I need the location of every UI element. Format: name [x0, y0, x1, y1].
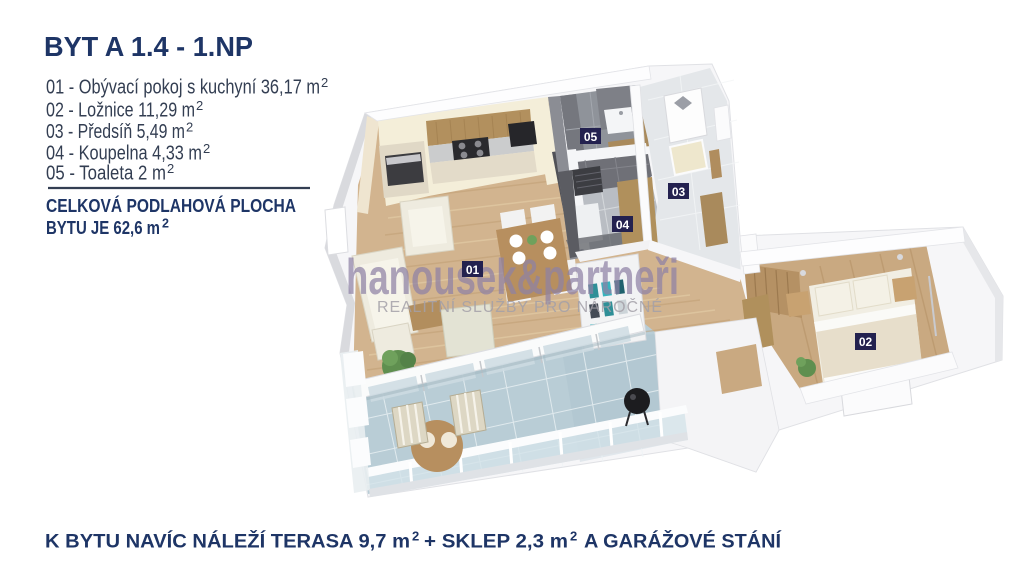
svg-text:2: 2 — [203, 141, 210, 156]
svg-text:2: 2 — [196, 98, 203, 113]
svg-text:A GARÁŽOVÉ STÁNÍ: A GARÁŽOVÉ STÁNÍ — [584, 531, 782, 553]
svg-text:BYT A 1.4 - 1.NP: BYT A 1.4 - 1.NP — [44, 31, 253, 62]
svg-text:01 - Obývací pokoj s kuchyní 3: 01 - Obývací pokoj s kuchyní 36,17 m — [46, 77, 320, 99]
svg-text:CELKOVÁ PODLAHOVÁ PLOCHA: CELKOVÁ PODLAHOVÁ PLOCHA — [46, 195, 296, 216]
svg-text:01: 01 — [466, 263, 480, 277]
svg-text:2: 2 — [570, 529, 577, 544]
svg-text:BYTU JE 62,6 m: BYTU JE 62,6 m — [46, 217, 160, 238]
svg-text:05: 05 — [584, 130, 598, 144]
svg-text:2: 2 — [167, 161, 174, 176]
svg-text:05 - Toaleta 2 m: 05 - Toaleta 2 m — [46, 163, 166, 185]
svg-text:04 - Koupelna 4,33 m: 04 - Koupelna 4,33 m — [46, 143, 202, 165]
svg-text:04: 04 — [616, 218, 630, 232]
svg-text:02 - Ložnice 11,29 m: 02 - Ložnice 11,29 m — [46, 100, 195, 122]
svg-text:hanousek&partneři: hanousek&partneři — [346, 249, 679, 305]
svg-text:2: 2 — [162, 217, 169, 231]
svg-text:+ SKLEP 2,3 m: + SKLEP 2,3 m — [424, 532, 568, 553]
svg-text:K BYTU NAVÍC NÁLEŽÍ TERASA 9,7: K BYTU NAVÍC NÁLEŽÍ TERASA 9,7 m — [45, 531, 410, 553]
svg-text:03: 03 — [672, 185, 686, 199]
svg-text:REALITNÍ SLUŽBY PRO NÁROČNÉ: REALITNÍ SLUŽBY PRO NÁROČNÉ — [377, 297, 666, 316]
svg-text:02: 02 — [859, 335, 873, 349]
svg-text:2: 2 — [412, 529, 419, 544]
svg-text:03 - Předsíň 5,49 m: 03 - Předsíň 5,49 m — [46, 121, 185, 143]
svg-text:2: 2 — [321, 75, 328, 90]
svg-text:2: 2 — [186, 120, 193, 135]
